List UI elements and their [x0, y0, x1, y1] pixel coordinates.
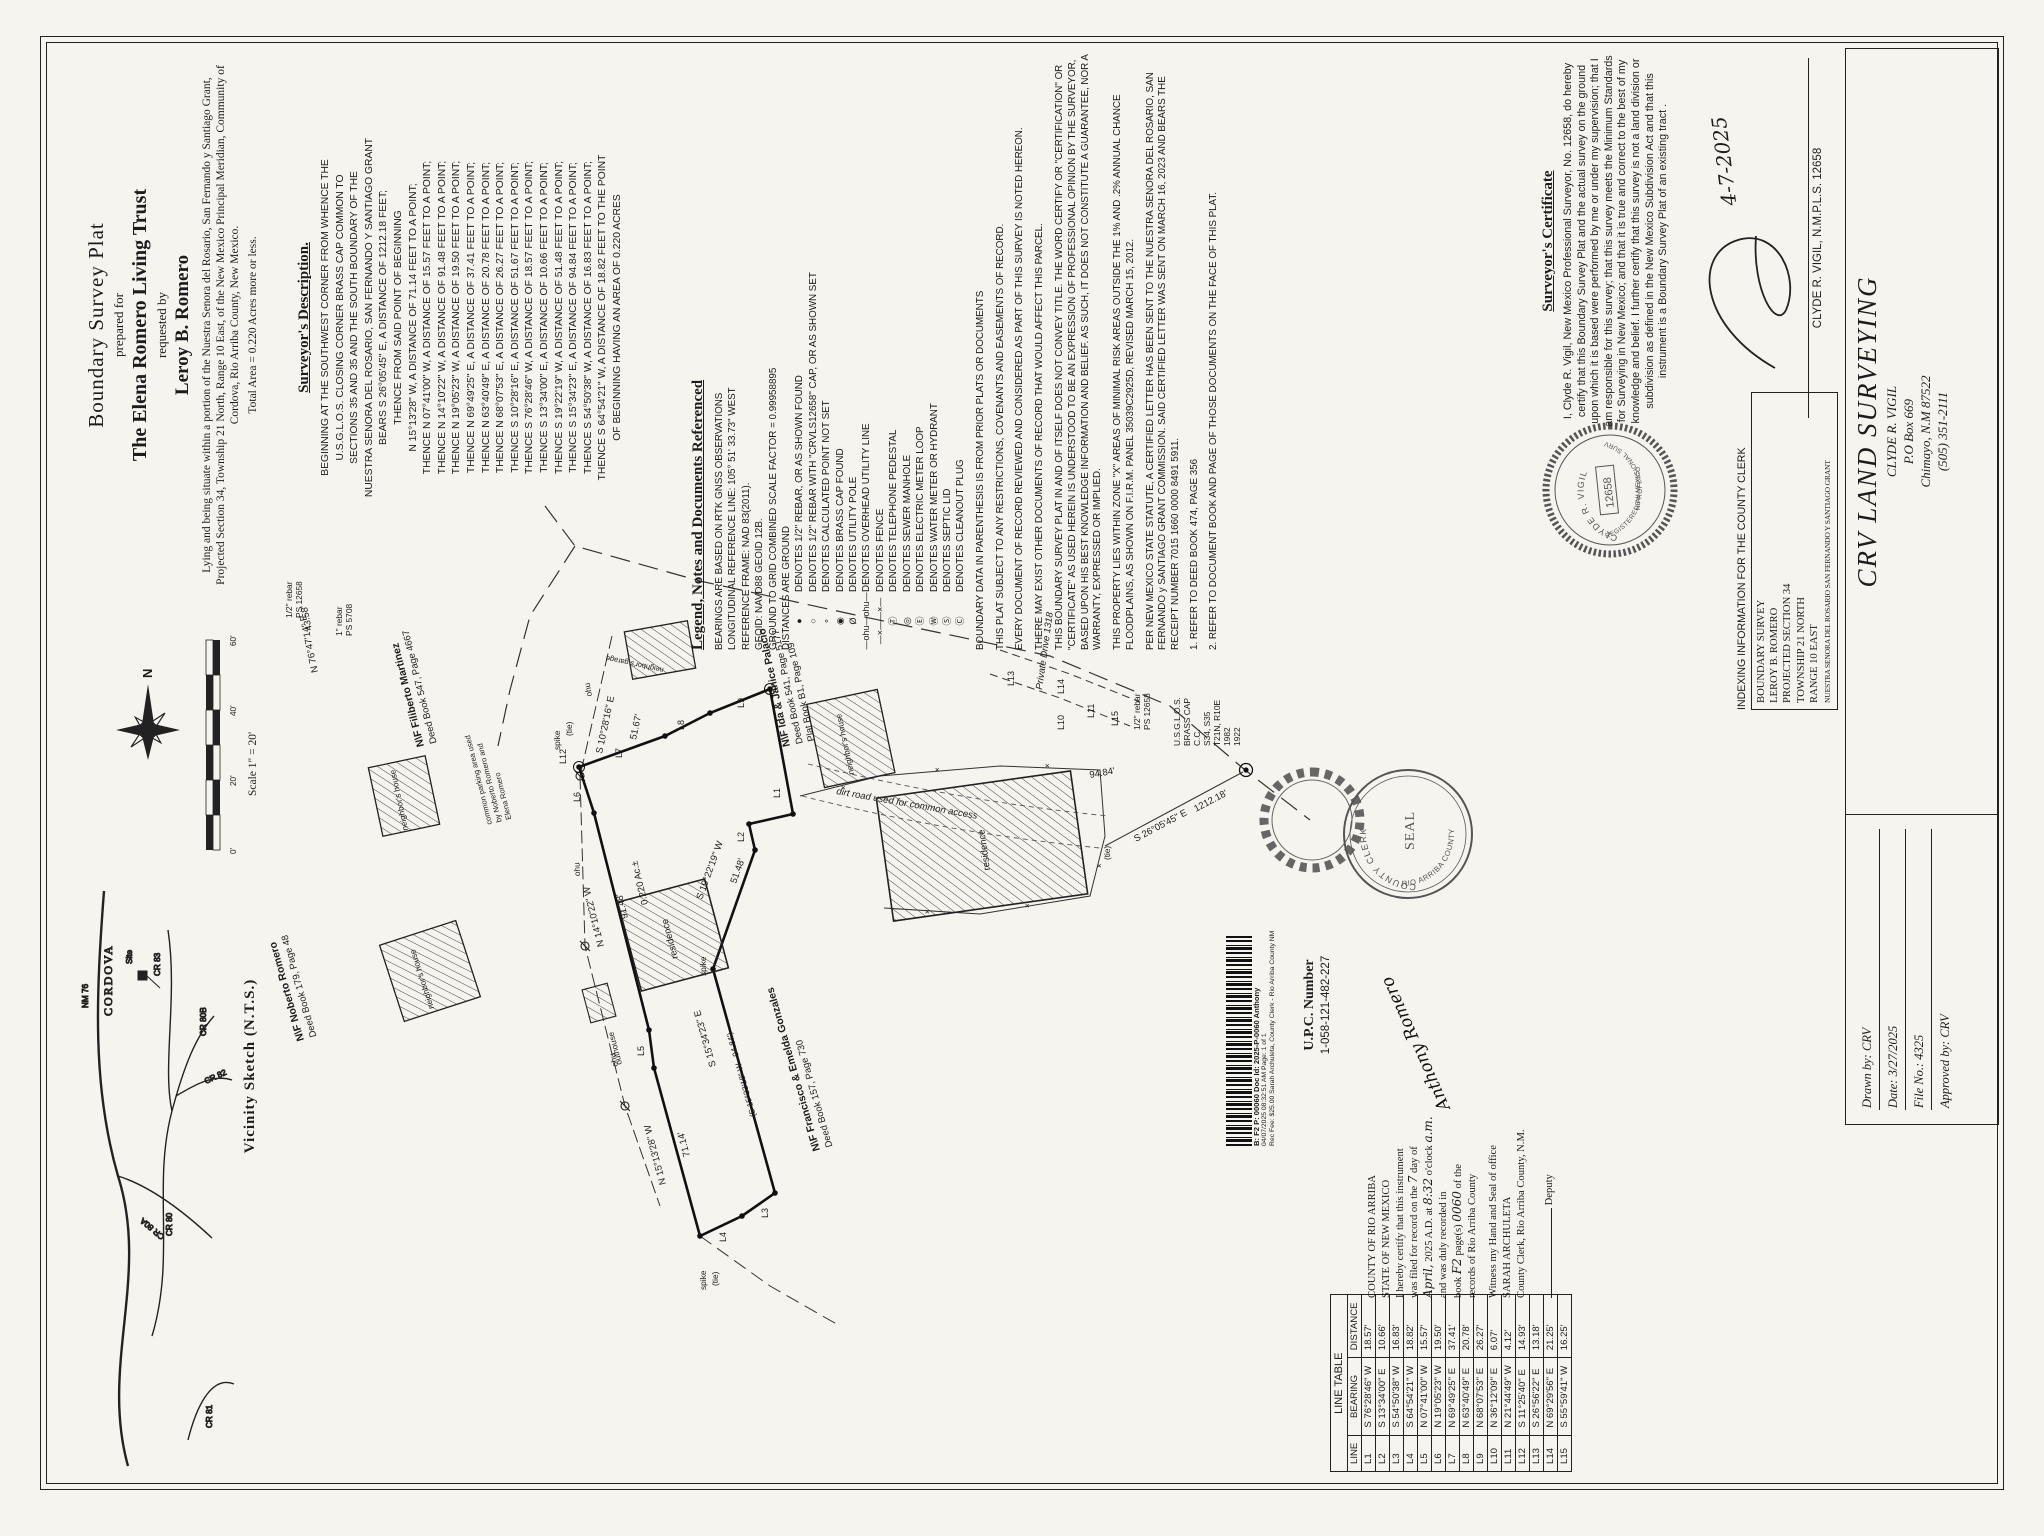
legend-paragraph: THIS BOUNDARY SURVEY PLAT IN AND OF ITSE… [1054, 50, 1105, 650]
legend-item: ◉DENOTES BRASS CAP FOUND [834, 50, 847, 650]
line-table-header-bearing: BEARING [1348, 1358, 1362, 1435]
svg-text:L2: L2 [736, 832, 746, 842]
svg-text:1/2" rebar: 1/2" rebar [1132, 693, 1142, 730]
legend-paragraph: THIS PLAT SUBJECT TO ANY RESTRICTIONS, C… [995, 50, 1008, 650]
barcode [1226, 936, 1252, 1146]
plat-title: Boundary Survey Plat [84, 60, 109, 590]
description-course: N 15°13'28" W, A DISTANCE OF 71.14 FEET … [407, 45, 422, 590]
legend-item: ●DENOTES 1/2" REBAR, OR AS SHOWN FOUND [793, 50, 806, 650]
table-row: L3S 54°50'38" W16.83' [1390, 1295, 1404, 1472]
indexing-line: BOUNDARY SURVEY [1755, 399, 1768, 703]
indexing-line-grant: NUESTRA SENORA DEL ROSARIO SAN FERNANDO … [1821, 399, 1834, 703]
legend-item: —×——×—DENOTES FENCE [874, 50, 887, 650]
vicinity-site-marker [138, 971, 147, 980]
course11-bearing: S 19°22'19" W [694, 840, 725, 901]
county-clerk-name: SARAH ARCHULETA [1501, 1068, 1515, 1298]
legend-paragraph: BOUNDARY DATA IN PARENTHESIS IS FROM PRI… [975, 50, 988, 650]
line-table-header-distance: DISTANCE [1348, 1295, 1362, 1358]
svg-text:L6: L6 [572, 792, 582, 802]
surveyor-signature [1710, 236, 1791, 368]
svg-text:L11: L11 [1086, 704, 1096, 718]
recording-county: COUNTY OF RIO ARRIBA [1366, 1068, 1380, 1298]
description-course: THENCE S 76°28'46" W, A DISTANCE OF 18.5… [523, 45, 538, 590]
seal-number: 12658 [1602, 477, 1617, 509]
svg-text:L5: L5 [636, 1046, 646, 1056]
scale-tick-60: 60' [229, 635, 238, 646]
course1-bearing: N 15°13'28" W [642, 1124, 669, 1187]
legend-reference: 2. REFER TO DOCUMENT BOOK AND PAGE OF TH… [1208, 50, 1221, 650]
svg-text:1" rebar: 1" rebar [334, 606, 344, 636]
legend-paragraph: THIS PROPERTY LIES WITHIN ZONE "X" AREAS… [1112, 50, 1138, 650]
vicinity-label-cr80b: CR 80B [199, 1007, 208, 1036]
svg-text:×: × [1023, 903, 1032, 908]
situate-description: Lying and being situate within a portion… [200, 60, 242, 590]
svg-text:S34, S35: S34, S35 [1202, 711, 1212, 746]
svg-text:L13: L13 [1006, 671, 1016, 686]
deputy-line: Deputy [1543, 1068, 1557, 1298]
upc-value: 1-058-121-482-227 [1320, 910, 1332, 1100]
outhouse-building [582, 983, 616, 1023]
table-row: L5N 07°41'00" W15.57' [1418, 1295, 1432, 1472]
legend-item: ○DENOTES 1/2" REBAR WITH "CRVLS12658" CA… [807, 50, 820, 650]
legend-reference: 1. REFER TO DEED BOOK 474, PAGE 356 [1189, 50, 1202, 650]
legend-item: ∘DENOTES CALCULATED POINT NOT SET [820, 50, 833, 650]
svg-text:spike: spike [698, 1270, 708, 1290]
description-course: THENCE N 19°05'23" W, A DISTANCE OF 19.5… [450, 45, 465, 590]
county-clerk-title: County Clerk, Rio Arriba County, N.M. [1515, 1068, 1529, 1298]
course8-distance: 51.67' [628, 713, 644, 740]
recording-certificate: COUNTY OF RIO ARRIBA STATE OF NEW MEXICO… [1366, 1068, 1557, 1298]
tie-note-1: (tie) [1103, 846, 1112, 860]
scale-tick-40: 40' [229, 705, 238, 716]
description-course: THENCE S 15°34'23" E, A DISTANCE OF 94.8… [567, 45, 582, 590]
legend-item: ⓈDENOTES SEPTIC LID [941, 50, 954, 650]
svg-text:U.S.G.L.O.S.: U.S.G.L.O.S. [1172, 697, 1182, 746]
svg-text:1/2" rebar: 1/2" rebar [284, 581, 294, 618]
description-course: THENCE N 14°10'22" W, A DISTANCE OF 91.4… [436, 45, 451, 590]
brass-cap-note: U.S.G.L.O.S. BRASS CAP C.C. S34, S35 T21… [1172, 697, 1242, 746]
description-course: THENCE N 69°49'25" E, A DISTANCE OF 37.4… [465, 45, 480, 590]
svg-text:L10: L10 [1056, 715, 1066, 730]
stamp-datetime: 04/07/2025 08:32:51 AM Page: 1 of 1 [1261, 918, 1269, 1146]
ohu-label-2: ohu [573, 862, 582, 876]
vicinity-site-label: Site [125, 949, 134, 964]
overhead-utility-icon: —ohu—ohu— [860, 592, 873, 650]
rebar-note-southeast: 1/2" rebar PS 12658 [1132, 693, 1152, 730]
legend-item: —ohu—ohu—DENOTES OVERHEAD UTILITY LINE [860, 50, 873, 650]
legend-paragraph: PER NEW MEXICO STATE STATUTE, A CERTIFIE… [1145, 50, 1183, 650]
description-course: THENCE S 19°22'19" W, A DISTANCE OF 51.4… [553, 45, 568, 590]
fence-icon: —×——×— [874, 592, 887, 650]
vicinity-label-cr83: CR 83 [153, 952, 162, 976]
legend-heading: Legend, Notes and Documents Referenced [690, 50, 707, 650]
county-seal-center: SEAL [1403, 811, 1418, 850]
owner-gonzales-line1: N\F Francisco & Emelda Gonzales [765, 986, 823, 1153]
description-course: THENCE S 64°54'21" W, A DISTANCE OF 18.8… [596, 45, 611, 590]
vicinity-road-cr83 [168, 930, 172, 1111]
firm-title-block: Drawn by: CRV Date: 3/27/2025 File No.: … [1845, 48, 1999, 1125]
ohu-label-1: ohu [583, 682, 594, 697]
certificate-heading: Surveyor's Certificate [1540, 52, 1557, 430]
stamp-doc-id: B: F2 P: 00060 Doc Id: 2025-P-0060 Antho… [1252, 918, 1261, 1146]
seal-state: NEW MEXICO [1635, 467, 1642, 510]
table-row: L2S 13°34'00" E10.66' [1376, 1295, 1390, 1472]
table-row: L7N 69°49'25" E37.41' [1446, 1295, 1460, 1472]
filed-month-handwritten: April, [1421, 1264, 1435, 1298]
sewer-manhole-icon: ◎ [901, 592, 914, 650]
scanned-plat-sheet: NM 76 CR 80A CR 80 CR 80B CR 82 CR 83 CR… [0, 0, 2044, 1536]
table-row: L6N 19°05'23" W19.50' [1432, 1295, 1446, 1472]
indexing-information: INDEXING INFORMATION FOR THE COUNTY CLER… [1736, 392, 1838, 710]
svg-text:L3: L3 [760, 1208, 770, 1218]
table-row: L4S 64°54'21" W18.82' [1404, 1295, 1418, 1472]
table-row: L9N 68°07'53" E26.27' [1474, 1295, 1488, 1472]
course12-prior-plat: (S 15°33'18" W - 94.84') [725, 1031, 758, 1118]
legend-note: REFERENCE FRAME: NAD 83(2011). [740, 50, 753, 650]
description-course: THENCE S 54°50'38" W, A DISTANCE OF 16.8… [582, 45, 597, 590]
description-intro-line: BEARS S 26°05'45" E, A DISTANCE OF 1212.… [377, 45, 392, 590]
vicinity-road-cr80 [152, 1016, 214, 1336]
compass-star-main [116, 684, 180, 760]
fence-distance-94: 94.84' [1089, 766, 1116, 781]
table-row: L10N 36°12'09" E6.07' [1488, 1295, 1502, 1472]
indexing-line: RANGE 10 EAST [1808, 399, 1821, 703]
firm-approvals: Drawn by: CRV Date: 3/27/2025 File No.: … [1846, 814, 1998, 1124]
firm-name: CRV LAND SURVEYING [1852, 49, 1883, 814]
recording-witness: Witness my Hand and Seal of office [1487, 1068, 1501, 1298]
legend-note: DISTANCES ARE GROUND [780, 50, 793, 650]
rebar-set-icon: ○ [807, 592, 820, 650]
electric-meter-icon: Ⓔ [914, 592, 927, 650]
buildings [368, 621, 1087, 1023]
stamp-fee: Rec Fee: $25.00 Sarah Archuleta, County … [1269, 918, 1277, 1146]
scale-tick-0: 0' [229, 847, 238, 854]
brass-cap-icon: ◉ [834, 592, 847, 650]
legend-note: BEARINGS ARE BASED ON RTK GNSS OBSERVATI… [713, 50, 726, 650]
svg-text:×: × [1043, 763, 1052, 768]
approved-by: Approved by: CRV [1932, 829, 1957, 1110]
firm-identity: CRV LAND SURVEYING CLYDE R. VIGIL P.O Bo… [1846, 49, 1998, 814]
svg-text:L7: L7 [614, 748, 624, 758]
legend-item: ⒸDENOTES CLEANOUT PLUG [954, 50, 967, 650]
svg-text:BRASS CAP: BRASS CAP [1182, 698, 1192, 746]
total-area: Total Area = 0.220 Acres more or less. [247, 60, 259, 590]
title-block: Boundary Survey Plat prepared for The El… [84, 60, 259, 590]
north-label: N [140, 669, 155, 678]
svg-text:L15: L15 [1110, 711, 1120, 726]
filed-meridiem-handwritten: a.m. [1421, 1116, 1435, 1142]
table-row: L8N 63°40'49" E20.78' [1460, 1295, 1474, 1472]
svg-text:L9: L9 [736, 698, 746, 708]
surveyors-certificate-section: Surveyor's Certificate I, Clyde R. Vigil… [1540, 52, 1671, 430]
indexing-line: PROJECTED SECTION 34 [1781, 399, 1794, 703]
requestor-name: Leroy B. Romero [172, 60, 194, 590]
indexing-line: LEROY B. ROMERO [1768, 399, 1781, 703]
svg-text:1922: 1922 [1232, 727, 1242, 746]
recording-state: STATE OF NEW MEXICO [1380, 1068, 1394, 1298]
svg-text:L1: L1 [772, 788, 782, 798]
firm-address2: Chimayo, N.M 87522 [1917, 49, 1934, 814]
vicinity-town-label: CORDOVA [101, 944, 115, 1016]
firm-phone: (505) 351-2111 [1934, 49, 1951, 814]
cleanout-plug-icon: Ⓒ [954, 592, 967, 650]
vicinity-label-cr80a: CR 80A [138, 1216, 166, 1242]
legend-item: ⓌDENOTES WATER METER OR HYDRANT [928, 50, 941, 650]
rebar-found-icon: ● [793, 592, 806, 650]
table-row: L13S 26°56'22" E13.18' [1530, 1295, 1544, 1472]
plat-page: NM 76 CR 80A CR 80 CR 80B CR 82 CR 83 CR… [0, 0, 2044, 1536]
description-intro-line: SECTIONS 35 AND 35 AND THE SOUTH BOUNDAR… [348, 45, 363, 590]
scale-tick-20: 20' [229, 775, 238, 786]
svg-text:spike: spike [698, 956, 708, 976]
file-number: File No.: 4325 [1906, 829, 1932, 1110]
svg-text:×: × [933, 767, 942, 772]
description-course: THENCE S 13°34'00" E, A DISTANCE OF 10.6… [538, 45, 553, 590]
legend-item: ⓉDENOTES TELEPHONE PEDESTAL [887, 50, 900, 650]
svg-text:×: × [1095, 863, 1104, 868]
prepared-for-label: prepared for [111, 60, 127, 590]
common-parking-note: common parking area used by Noberto Rome… [463, 729, 513, 825]
filed-day-handwritten: 7 [1406, 1176, 1420, 1184]
legend-notes-section: Legend, Notes and Documents Referenced B… [690, 50, 1221, 650]
owner-labels: N\F Filiberto Martinez Deed Book 547, Pa… [266, 622, 835, 1152]
svg-text:(tie): (tie) [710, 1271, 720, 1286]
legend-paragraph: EVERY DOCUMENT OF RECORD REVIEWED AND CO… [1014, 50, 1027, 650]
svg-text:L12: L12 [558, 749, 568, 764]
table-row: L15S 55°59'41" W16.25' [1558, 1295, 1572, 1472]
septic-lid-icon: Ⓢ [941, 592, 954, 650]
page-handwritten: 0060 [1450, 1191, 1464, 1222]
table-row: L12S 11°25'40" E14.93' [1516, 1295, 1530, 1472]
county-clerk-seal: COUNTY CLERK RIO ARRIBA COUNTY SEAL [1264, 770, 1472, 898]
indexing-line: TOWNSHIP 21 NORTH [1795, 399, 1808, 703]
course8-bearing: S 10°28'16" E [594, 695, 617, 755]
vicinity-label-cr81: CR 81 [205, 1404, 214, 1428]
water-meter-icon: Ⓦ [928, 592, 941, 650]
book-handwritten: F2 [1450, 1258, 1464, 1274]
vicinity-label-cr80: CR 80 [165, 1212, 174, 1236]
line-table: LINE TABLE LINE BEARING DISTANCE L1S 76°… [1330, 1294, 1572, 1472]
legend-note: GROUND TO GRID COMBINED SCALE FACTOR = 0… [767, 50, 780, 650]
vicinity-label-nm76: NM 76 [81, 983, 90, 1008]
scale-label: Scale 1" = 20' [247, 732, 259, 796]
tie-line: S 26°05'45" E 1212.18' (tie) U.S.G.L.O.S… [1103, 693, 1253, 860]
indexing-heading: INDEXING INFORMATION FOR THE COUNTY CLER… [1736, 392, 1748, 710]
description-course: THENCE S 10°28'16" E, A DISTANCE OF 51.6… [509, 45, 524, 590]
calculated-point-icon: ∘ [820, 592, 833, 650]
telephone-pedestal-icon: Ⓣ [887, 592, 900, 650]
svg-text:L8: L8 [676, 720, 686, 730]
table-row: L14N 69°29'56" E21.25' [1544, 1295, 1558, 1472]
north-arrow-icon: N [116, 669, 180, 760]
legend-item: ⒺDENOTES ELECTRIC METER LOOP [914, 50, 927, 650]
filed-time-handwritten: 8:32 [1421, 1178, 1435, 1205]
description-intro-line: THENCE FROM SAID POINT OF BEGINNING [392, 45, 407, 590]
description-intro-line: U.S.G.L.O.S. CLOSING CORNER BRASS CAP CO… [334, 45, 349, 590]
svg-text:PS 12658: PS 12658 [1142, 693, 1152, 730]
svg-text:L4: L4 [718, 1232, 728, 1242]
vicinity-site-leader [147, 976, 160, 988]
svg-text:1982: 1982 [1222, 727, 1232, 746]
svg-text:T21N, R10E: T21N, R10E [1212, 700, 1222, 746]
line-table-header-line: LINE [1348, 1435, 1362, 1471]
certificate-signer-name: CLYDE R. VIGIL, N.M.P.L.S. 12658 [1808, 58, 1824, 418]
utility-pole-icon: Ø [847, 592, 860, 650]
description-course: OF BEGINNING HAVING AN AREA OF 0.220 ACR… [611, 45, 626, 590]
certificate-body: I, Clyde R. Vigil, New Mexico Profession… [1562, 52, 1671, 430]
client-trust-name: The Elena Romero Living Trust [129, 60, 152, 590]
description-course: THENCE N 68°07'53" E, A DISTANCE OF 26.2… [494, 45, 509, 590]
vicinity-sketch: NM 76 CR 80A CR 80 CR 80B CR 82 CR 83 CR… [81, 891, 234, 1466]
tie-bearing-label: S 26°05'45" E [1132, 807, 1189, 844]
description-course: THENCE N 07°41'00" W, A DISTANCE OF 15.5… [421, 45, 436, 590]
description-intro-line: NUESTRA SENORA DEL ROSARIO, SAN FERNANDO… [363, 45, 378, 590]
svg-text:L14: L14 [1056, 679, 1066, 694]
course12-bearing: S 15°34'23" E [692, 1009, 719, 1068]
legend-note: LONGITUDINAL REFERENCE LINE: 105° 51' 33… [726, 50, 739, 650]
scale-bar: 0' 20' 40' 60' Scale 1" = 20' [206, 635, 259, 854]
recording-line: I hereby certify that this instrument [1394, 1068, 1408, 1298]
vicinity-label-cr82: CR 82 [203, 1068, 228, 1086]
recording-line: records of Rio Arriba County [1466, 1068, 1480, 1298]
svg-text:C.C.: C.C. [1192, 729, 1202, 746]
tie-distance-label: 1212.18' [1192, 788, 1229, 815]
upc-number-block: U.P.C. Number 1-058-121-482-227 [1302, 910, 1332, 1100]
table-row: L1S 76°28'46" W18.57' [1362, 1295, 1376, 1472]
line-table-title: LINE TABLE [1331, 1295, 1348, 1472]
svg-text:PS 5708: PS 5708 [344, 604, 354, 636]
legend-note: GEOID: NAVD88 GEOID 12B. [753, 50, 766, 650]
legend-paragraph: THERE MAY EXIST OTHER DOCUMENTS OF RECOR… [1034, 50, 1047, 650]
firm-surveyor: CLYDE R. VIGIL [1883, 49, 1900, 814]
svg-text:(tie): (tie) [564, 721, 574, 736]
drawn-by: Drawn by: CRV [1854, 829, 1880, 1110]
indexing-box: BOUNDARY SURVEY LEROY B. ROMERO PROJECTE… [1751, 392, 1838, 710]
surveyors-description-section: Surveyor's Description. BEGINNING AT THE… [296, 45, 625, 590]
table-row: L11N 21°44'49" W4.12' [1502, 1295, 1516, 1472]
recorder-stamp: B: F2 P: 00060 Doc Id: 2025-P-0060 Antho… [1226, 918, 1278, 1146]
description-course: THENCE N 63°40'49" E, A DISTANCE OF 20.7… [480, 45, 495, 590]
description-heading: Surveyor's Description. [296, 45, 313, 590]
description-intro-line: BEGINNING AT THE SOUTHWEST CORNER FROM W… [319, 45, 334, 590]
vicinity-caption: Vicinity Sketch (N.T.S.) [242, 896, 259, 1236]
legend-item: ØDENOTES UTILITY POLE [847, 50, 860, 650]
firm-address1: P.O Box 669 [1900, 49, 1917, 814]
legend-item: ◎DENOTES SEWER MANHOLE [901, 50, 914, 650]
svg-text:spike: spike [552, 730, 562, 750]
recording-line: was filed for record on the 7 day of [1407, 1068, 1422, 1298]
requested-by-label: requested by [154, 60, 170, 590]
upc-label: U.P.C. Number [1302, 910, 1318, 1100]
deputy-signature-line [1551, 1208, 1552, 1298]
plat-date: Date: 3/27/2025 [1880, 829, 1906, 1110]
